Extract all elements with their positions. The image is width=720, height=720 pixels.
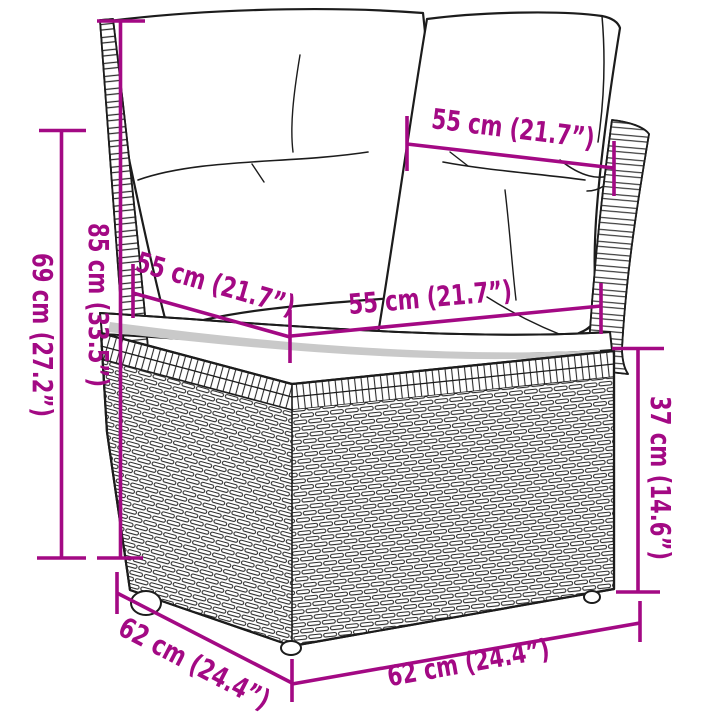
sofa-foot-right	[584, 591, 600, 603]
dimension-label-back-height: 85 cm (33.5”)	[82, 223, 115, 387]
rattan-base	[95, 325, 620, 655]
sofa-illustration	[85, 9, 665, 655]
dimension-frame-height: 69 cm (27.2”)	[26, 131, 86, 559]
dimension-label-seat-height: 37 cm (14.6”)	[644, 396, 677, 560]
sofa-foot-front	[281, 641, 301, 655]
dimension-label-frame-height: 69 cm (27.2”)	[26, 253, 59, 417]
dimension-seat-height: 37 cm (14.6”)	[612, 349, 677, 593]
dimension-diagram: 85 cm (33.5”) 69 cm (27.2”) 55 cm (21.7”…	[0, 0, 720, 720]
sofa-dimension-drawing: 85 cm (33.5”) 69 cm (27.2”) 55 cm (21.7”…	[0, 0, 720, 720]
dimension-label-base-width: 62 cm (24.4”)	[385, 632, 552, 693]
